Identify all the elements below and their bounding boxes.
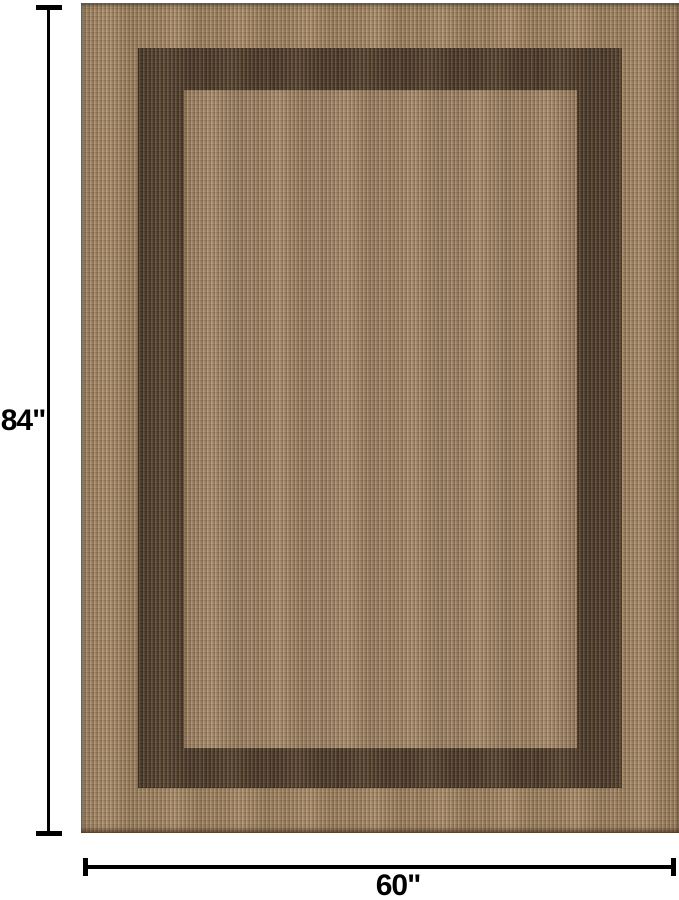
width-dimension-label: 60" xyxy=(352,871,444,900)
rug-border-band xyxy=(138,48,622,788)
rug-inner-field xyxy=(184,90,577,748)
dimension-end-cap-right xyxy=(671,858,676,876)
height-dimension-shaft xyxy=(47,5,50,836)
dimension-end-cap-bottom xyxy=(36,831,62,836)
height-dimension-label: 84" xyxy=(0,406,46,436)
product-dimension-image: 84" 60" xyxy=(0,0,679,900)
rug-photo xyxy=(81,3,679,833)
